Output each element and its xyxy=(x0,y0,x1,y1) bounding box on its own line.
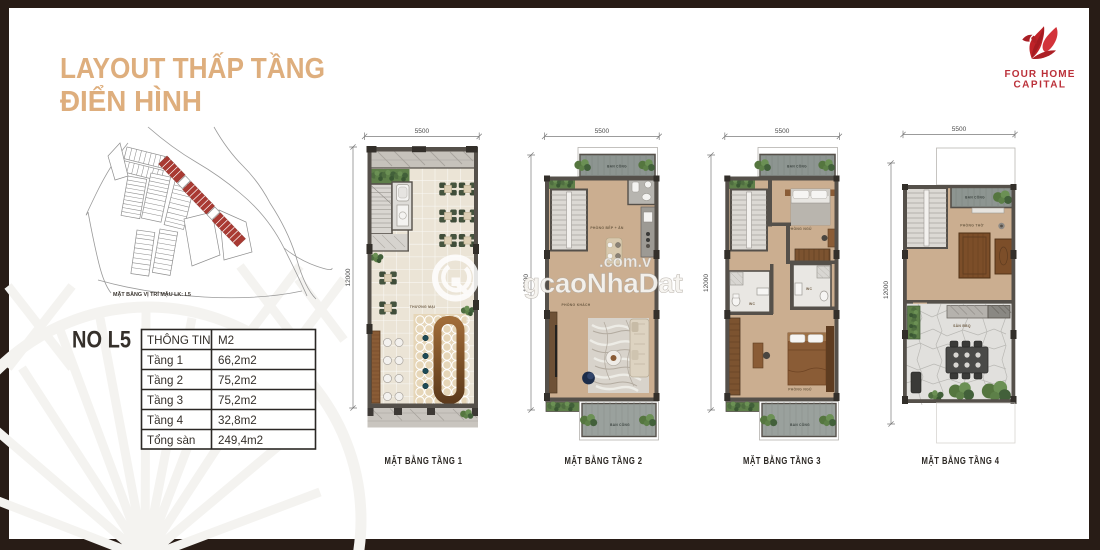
svg-text:5500: 5500 xyxy=(595,128,610,135)
svg-text:BAN CÔNG: BAN CÔNG xyxy=(787,164,807,169)
svg-text:THƯƠNG MẠI: THƯƠNG MẠI xyxy=(410,305,435,309)
svg-text:LAYOUT THẤP TẦNG: LAYOUT THẤP TẦNG xyxy=(60,51,325,85)
svg-text:WC: WC xyxy=(806,287,813,291)
svg-text:CAPITAL: CAPITAL xyxy=(1013,80,1066,91)
svg-text:PHÒNG NGỦ: PHÒNG NGỦ xyxy=(788,387,812,392)
svg-text:12000: 12000 xyxy=(345,268,352,286)
svg-text:SÂN BBQ: SÂN BBQ xyxy=(953,323,971,328)
svg-text:PHÒNG THỜ: PHÒNG THỜ xyxy=(960,223,984,228)
svg-text:Tầng 4: Tầng 4 xyxy=(147,414,184,427)
svg-text:BAN CÔNG: BAN CÔNG xyxy=(610,422,630,427)
svg-text:5500: 5500 xyxy=(415,128,430,135)
svg-text:MẶT BẰNG TẦNG 3: MẶT BẰNG TẦNG 3 xyxy=(743,454,821,467)
svg-text:M2: M2 xyxy=(218,334,234,347)
svg-text:5500: 5500 xyxy=(775,128,790,135)
svg-text:MẶT BẰNG TẦNG 1: MẶT BẰNG TẦNG 1 xyxy=(385,454,463,467)
svg-text:32,8m2: 32,8m2 xyxy=(218,414,257,427)
svg-text:5500: 5500 xyxy=(952,126,967,133)
svg-text:FOUR HOME: FOUR HOME xyxy=(1004,69,1075,80)
svg-text:MẶT BẰNG TẦNG 2: MẶT BẰNG TẦNG 2 xyxy=(565,454,643,467)
svg-text:gcaoNhaDat: gcaoNhaDat xyxy=(523,268,682,299)
svg-text:BAN CÔNG: BAN CÔNG xyxy=(965,195,985,200)
svg-text:MẶT BẰNG TẦNG 4: MẶT BẰNG TẦNG 4 xyxy=(922,454,1000,467)
svg-text:Tầng 3: Tầng 3 xyxy=(147,394,183,407)
svg-text:BAN CÔNG: BAN CÔNG xyxy=(790,422,810,427)
svg-text:Tầng 2: Tầng 2 xyxy=(147,374,183,387)
svg-text:THÔNG TIN: THÔNG TIN xyxy=(147,334,211,347)
svg-text:12000: 12000 xyxy=(703,274,710,292)
svg-text:PHÒNG KHÁCH: PHÒNG KHÁCH xyxy=(562,302,591,307)
svg-text:75,2m2: 75,2m2 xyxy=(218,374,257,387)
svg-text:BAN CÔNG: BAN CÔNG xyxy=(607,164,627,169)
svg-text:Tổng sàn: Tổng sàn xyxy=(147,434,195,447)
svg-text:Tầng 1: Tầng 1 xyxy=(147,354,183,367)
svg-text:249,4m2: 249,4m2 xyxy=(218,434,263,447)
svg-text:12000: 12000 xyxy=(883,281,890,299)
svg-text:MẶT BẰNG VỊ TRÍ MẬU LK: L5: MẶT BẰNG VỊ TRÍ MẬU LK: L5 xyxy=(113,290,191,298)
svg-text:66,2m2: 66,2m2 xyxy=(218,354,257,367)
svg-text:PHÒNG BẾP + ĂN: PHÒNG BẾP + ĂN xyxy=(590,225,623,230)
svg-text:75,2m2: 75,2m2 xyxy=(218,394,257,407)
svg-text:PHÒNG NGỦ: PHÒNG NGỦ xyxy=(788,226,812,231)
svg-text:WC: WC xyxy=(749,302,756,306)
svg-text:ĐIỂN HÌNH: ĐIỂN HÌNH xyxy=(60,84,202,118)
svg-text:NO L5: NO L5 xyxy=(72,327,131,354)
